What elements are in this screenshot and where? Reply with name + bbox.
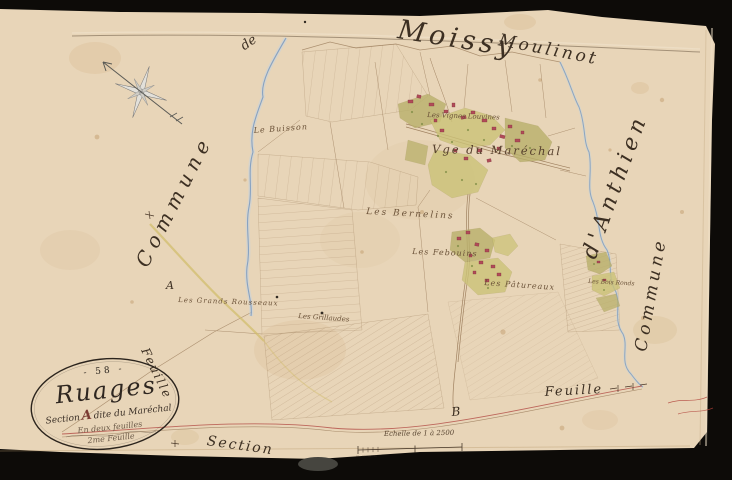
cartouche-section-letter: A — [79, 408, 95, 424]
cadastral-map-scan: Moissy Moulinot de Commune d'Anthien Com… — [0, 0, 732, 480]
cartouche-section-word: Section — [45, 413, 80, 427]
label-marker-a: A — [166, 280, 174, 291]
cartouche: - 58 - Ruages SectionAdite du Maréchal E… — [30, 359, 186, 460]
label-feuille-right: Feuille — [544, 383, 603, 399]
label-marker-b: B — [451, 405, 461, 418]
label-village-marechal: Vge du Maréchal — [432, 144, 562, 158]
scale-label: Echelle de 1 à 2500 — [384, 430, 454, 438]
scan-smudge — [298, 457, 338, 471]
